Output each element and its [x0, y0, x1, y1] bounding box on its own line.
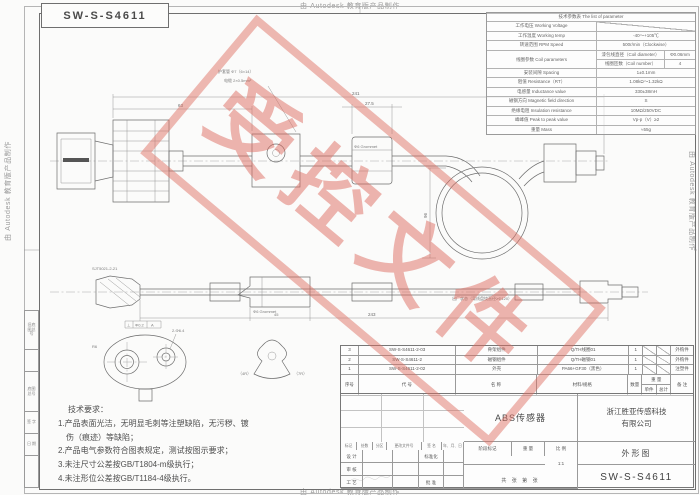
spec-label: 转速范围 RPM Speed	[487, 41, 597, 50]
bom-name: 骨架组件	[456, 346, 538, 355]
bom-unit-weight	[643, 365, 657, 374]
bom-material: Q/TH线圈01	[538, 346, 629, 355]
company-line1: 浙江胜亚传感科技	[607, 406, 667, 417]
rev-header-sign: 签 名	[422, 442, 442, 450]
bom-row: 2 SW-S-S4611-2 磁钢组件 Q/TH磁钢01 1 外购件	[341, 356, 693, 366]
bom-total-weight	[657, 356, 671, 365]
factory-note: 出厂状态（弯线盘绕直径≥Φ120）	[452, 295, 512, 301]
company-line2: 有限公司	[622, 418, 652, 429]
bom-no: 3	[341, 346, 359, 355]
part-label: SJT5021-2-21	[92, 266, 118, 271]
spec-value: 10MΩ/250VDC	[597, 107, 695, 116]
bom-header-weight: 重 量 单件 总计	[642, 375, 671, 395]
bom-remark: 外购件	[671, 356, 693, 365]
rev-header-zone: 分区	[373, 442, 387, 450]
tech-req-line: 3.未注尺寸公差按GB/T1804-m级执行；	[58, 458, 313, 472]
dimension-label: R6	[92, 344, 98, 349]
sig-approve: 批 准	[419, 476, 444, 489]
scale-value: 1:1	[545, 456, 578, 472]
spec-value: 1.08kΩ～1.32kΩ	[597, 78, 695, 87]
rev-header-mark: 标记	[341, 442, 357, 450]
dimension-label: 96	[423, 212, 428, 218]
spec-label: 线圈参数 Coil parameters	[487, 51, 597, 68]
part-label: Φ6 Grommet	[354, 144, 378, 149]
tech-req-line: 2.产品电气参数符合图表规定，测试按图示要求；	[58, 444, 313, 458]
spec-label: 工作温度 Working temp	[487, 32, 597, 41]
bom-unit-weight	[643, 356, 657, 365]
gdt-symbol: ⊥	[127, 323, 131, 328]
sig-review: 审 核	[341, 463, 363, 476]
spec-value: Vp-p（V）≥2	[597, 116, 695, 125]
bom-header-code: 代 号	[359, 375, 456, 395]
dimension-label: 45	[274, 312, 279, 317]
bom-qty: 1	[629, 356, 643, 365]
bom-header-weight-label: 重 量	[642, 375, 670, 385]
sig-standardize: 标准化	[419, 450, 444, 463]
spec-value: 500r/min（Clockwise）	[597, 41, 695, 50]
bom-name: 外壳	[456, 365, 538, 374]
bom-header-qty: 数量	[628, 375, 642, 395]
bom-header-row: 序号 代 号 名 称 材料/规格 数量 重 量 单件 总计 备 注	[341, 375, 693, 395]
rev-header-count: 处数	[357, 442, 373, 450]
tech-req-line: 伤（痕迹）等缺陷；	[58, 431, 313, 445]
dimension-label: 243	[368, 312, 376, 317]
sig-design: 设 计	[341, 450, 363, 463]
spec-sublabel: 漆包线直径（Coil diameter）	[597, 51, 665, 60]
sheet-count: 共 张 第 张	[464, 472, 578, 489]
stage-mark-boxes	[464, 464, 512, 465]
spec-subvalue: 4	[665, 60, 695, 69]
bom-no: 1	[341, 365, 359, 374]
drawing-number: SW-S-S4611	[578, 465, 695, 489]
spec-label: 峰峰值 Peak to peak value	[487, 116, 597, 125]
product-name: ABS传感器	[464, 394, 578, 442]
spec-table: 技术参数表 The list of parameter 工作电压 Working…	[486, 12, 696, 135]
spec-value: -40～+105℃	[597, 32, 695, 41]
drawing-sheet: 由 Autodesk 教育版产品制作 由 Autodesk 教育版产品制作 由 …	[0, 0, 700, 495]
bom-row: 3 SW-S-S4611-2-03 骨架组件 Q/TH线圈01 1 外购件	[341, 346, 693, 356]
signature-grid: 设 计 标准化 审 核 工 艺 批 准	[341, 450, 464, 489]
gdt-datum: A	[151, 323, 154, 328]
spec-value: 1±0.1mm	[597, 69, 695, 78]
bom-no: 2	[341, 356, 359, 365]
document-type: 外形图	[578, 442, 695, 465]
bom-table: 3 SW-S-S4611-2-03 骨架组件 Q/TH线圈01 1 外购件 2 …	[340, 345, 694, 396]
revision-header: 标记 处数 分区 更改文件号 签 名 年、月、日	[341, 442, 464, 450]
bom-material: PA66+GF30（黑色）	[538, 365, 629, 374]
spec-label: 安装间隙 Spacing	[487, 69, 597, 78]
spec-label: 阻值 Resistance（RT）	[487, 78, 597, 87]
spec-label: 工作电压 Working Voltage	[487, 22, 597, 31]
spec-value: 330±38mH	[597, 88, 695, 97]
dimension-label: （7R）	[294, 371, 307, 376]
tech-req-line: 4.未注形位公差按GB/T1184-4级执行。	[58, 472, 313, 486]
spec-label: 绝缘电阻 Insulation resistance	[487, 107, 597, 116]
bom-header-name: 名 称	[456, 375, 537, 395]
spec-subvalue: Φ0.06mm	[665, 51, 695, 60]
tech-req-line: 1.产品表面光洁，无明显毛刺等注塑缺陷，无污秽、镀	[58, 417, 313, 431]
weight-label: 重 量	[512, 442, 545, 456]
bom-total-weight	[657, 365, 671, 374]
stage-label: 阶段标记	[464, 442, 512, 456]
dimension-label: 27.5	[365, 101, 374, 106]
spec-value	[597, 22, 695, 31]
gdt-tolerance: Φ0.2	[135, 323, 145, 328]
rev-header-docno: 更改文件号	[387, 442, 422, 450]
bom-code: SW-S-S4611-2	[359, 356, 456, 365]
spec-sublabel: 线圈匝数（Coil number）	[597, 60, 665, 69]
spec-label: 重量 Mass	[487, 126, 597, 135]
sig-blank	[419, 463, 444, 476]
sig-process: 工 艺	[341, 476, 363, 489]
bom-material: Q/TH磁钢01	[538, 356, 629, 365]
bom-header-remark: 备 注	[671, 375, 693, 395]
spec-label: 磁钢方向 Magnetic field direction	[487, 97, 597, 106]
spec-value: S	[597, 97, 695, 106]
spec-table-title: 技术参数表 The list of parameter	[487, 13, 695, 21]
bom-remark: 注塑件	[671, 365, 693, 374]
technical-requirements: 技术要求： 1.产品表面光洁，无明显毛刺等注塑缺陷，无污秽、镀 伤（痕迹）等缺陷…	[58, 403, 313, 486]
bom-qty: 1	[629, 346, 643, 355]
title-block: 标记 处数 分区 更改文件号 签 名 年、月、日 设 计 标准化 审 核 工 艺	[340, 393, 694, 488]
stage-values: 1:1	[464, 456, 578, 472]
bom-remark: 外购件	[671, 346, 693, 355]
bom-code: SW-S-S4611-2-02	[359, 365, 456, 374]
company-name: 浙江胜亚传感科技 有限公司	[578, 394, 695, 442]
bom-qty: 1	[629, 365, 643, 374]
bom-header-no: 序号	[341, 375, 359, 395]
bom-row: 1 SW-S-S4611-2-02 外壳 PA66+GF30（黑色） 1 注塑件	[341, 365, 693, 375]
bom-code: SW-S-S4611-2-03	[359, 346, 456, 355]
bom-name: 磁钢组件	[456, 356, 538, 365]
dimension-label: 2-Φ6.4	[172, 328, 185, 333]
bom-header-material: 材料/规格	[537, 375, 628, 395]
stage-header: 阶段标记 重 量 比 例	[464, 442, 578, 456]
spec-value: ≈55g	[597, 126, 695, 135]
revision-grid	[341, 394, 464, 442]
dimension-label: （4R）	[238, 371, 251, 376]
bom-unit-weight	[643, 346, 657, 355]
leader-note: 护套管 Φ7（6×14）	[218, 68, 254, 74]
bom-total-weight	[657, 346, 671, 355]
spec-label: 电感量 Inductance value	[487, 88, 597, 97]
dimension-label: 241	[352, 91, 360, 96]
dimension-label: 63	[178, 103, 184, 108]
tech-req-title: 技术要求：	[68, 403, 313, 417]
leader-note: 电缆 2×0.5mm²	[224, 77, 252, 83]
scale-label: 比 例	[545, 442, 578, 456]
rev-header-date: 年、月、日	[442, 442, 464, 450]
